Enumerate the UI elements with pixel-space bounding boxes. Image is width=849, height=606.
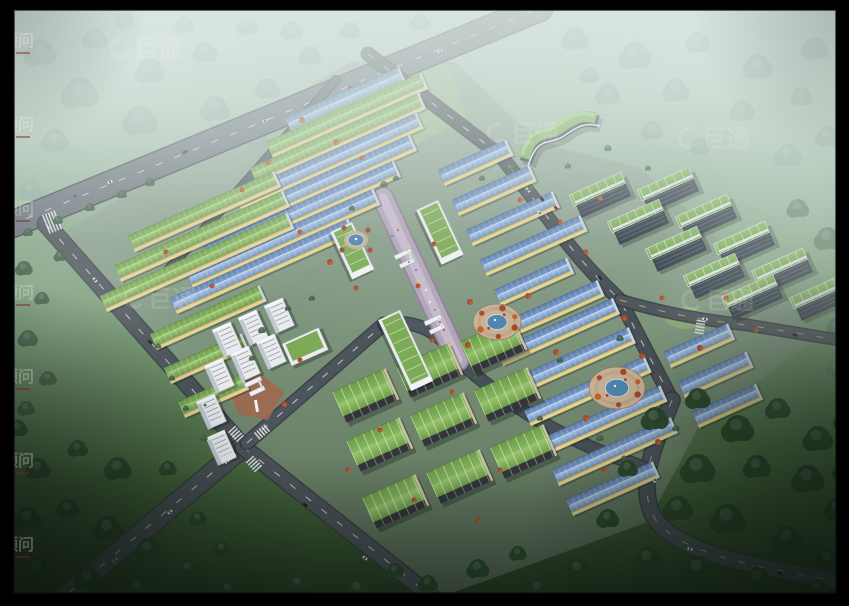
frame-border-right (836, 0, 849, 606)
frame-border-bottom (0, 593, 849, 606)
watermark-side-mark (16, 556, 30, 558)
boulevard-figure-dot (450, 344, 452, 346)
watermark-side-mark (16, 220, 30, 222)
accent-tree-red (281, 401, 287, 407)
accent-tree-red (553, 349, 559, 355)
watermark-side-mark (16, 388, 30, 390)
watermark-side-mark (16, 52, 30, 54)
watermark-side-mark (16, 304, 30, 306)
accent-tree-red (450, 390, 455, 395)
accent-tree-red (621, 315, 627, 321)
watermark-side-mark (16, 136, 30, 138)
watermark-logo-text: 巨通 (702, 125, 750, 153)
watermark-side-mark (16, 472, 30, 474)
watermark-logo-text: 巨通 (134, 35, 182, 63)
watermark-logo-text: 巨通 (706, 287, 754, 315)
accent-tree-red (378, 428, 383, 433)
watermark-logo-text: 巨通 (511, 120, 559, 148)
accent-tree-red (465, 342, 471, 348)
aerial-rendering: 巨通巨通巨通巨通巨通顾问顾问顾问顾问顾问顾问顾问 (0, 0, 849, 606)
frame-border-left (0, 0, 14, 606)
accent-tree-red (298, 358, 303, 363)
scene-svg: 巨通巨通巨通巨通巨通顾问顾问顾问顾问顾问顾问顾问 (0, 0, 849, 606)
frame-border-top (0, 0, 849, 10)
watermark-logo-text: 巨通 (148, 285, 196, 313)
